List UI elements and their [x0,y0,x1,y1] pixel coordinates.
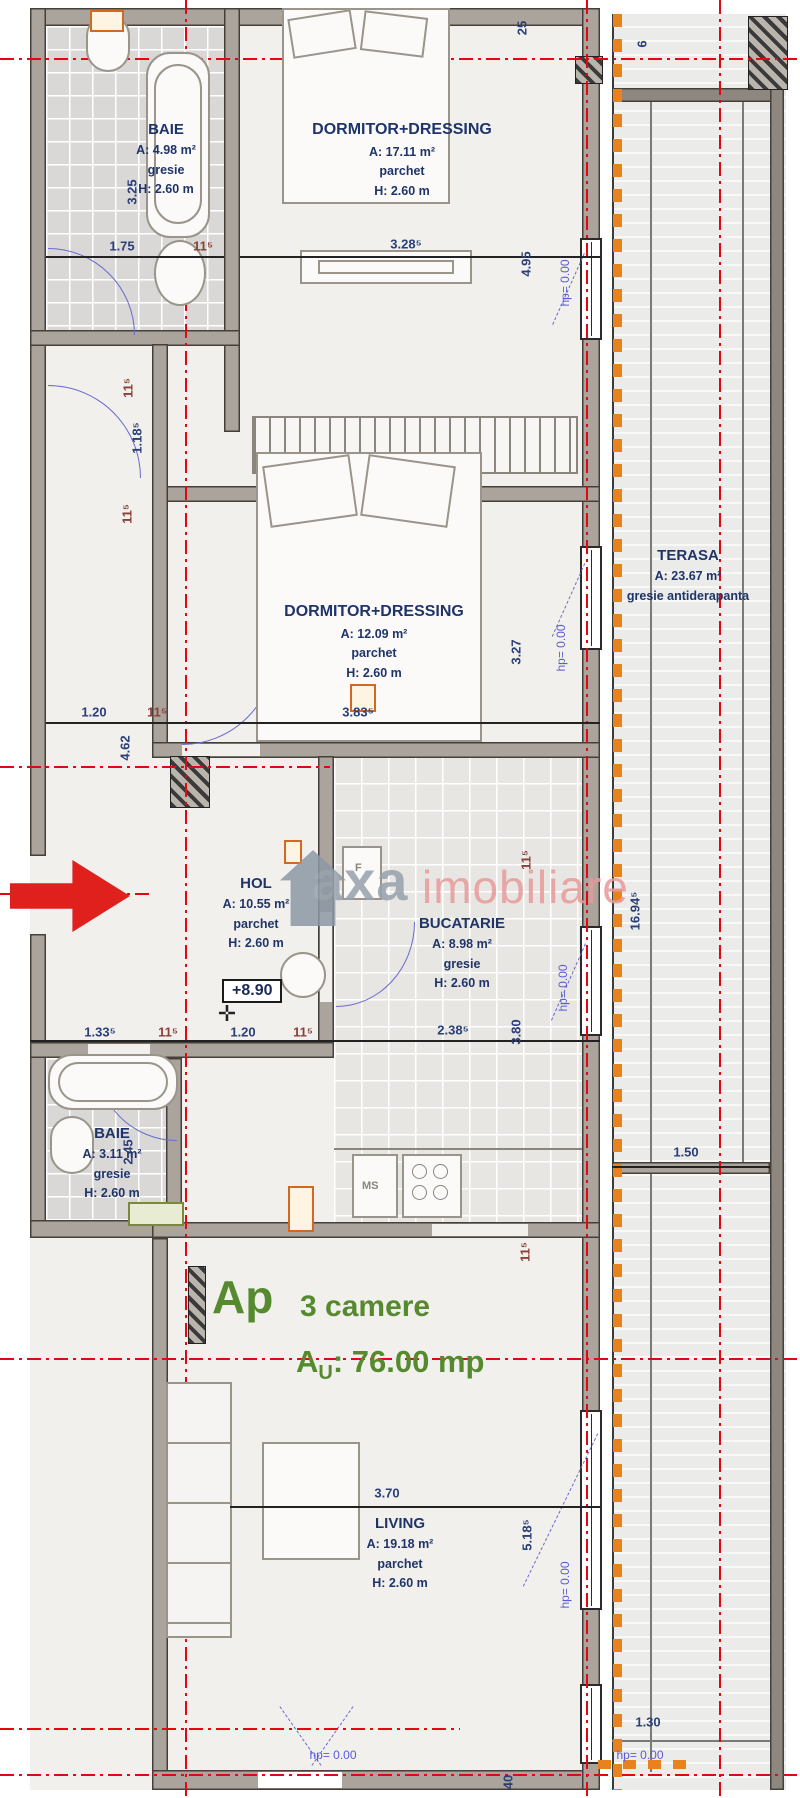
wall [152,344,168,758]
dimension-label: 4.95 [519,251,534,276]
room-label-dormitor-top: DORMITOR+DRESSING A: 17.11 m² parchet H:… [312,118,492,201]
terasa-wall [612,1162,770,1174]
dimension-label: 1.30 [635,1715,660,1730]
dimension-label: 1.50 [673,1145,698,1160]
passage-opening [432,1224,528,1236]
door-opening [320,912,332,1002]
parapet-height-label: hp= 0.00 [309,1748,356,1762]
dimension-label: 3.27 [509,639,524,664]
coffee-table [262,1442,360,1560]
red-axis-line [586,0,588,1798]
dimension-line [240,256,600,258]
dimension-line [612,1166,770,1168]
room-label-terasa: TERASA A: 23.67 m² gresie antiderapanta [627,544,749,606]
electrical-box [288,1186,314,1232]
kitchen-sink [280,952,326,998]
window [580,926,602,1036]
parapet-height-label: hp= 0.00 [554,624,568,671]
room-label-living: LIVING A: 19.18 m² parchet H: 2.60 m [367,1512,434,1593]
dimension-label: 11⁵ [519,850,534,870]
balcony-door [580,1684,602,1764]
dimension-label: 1.18⁵ [130,422,145,453]
red-axis-line [0,766,330,768]
pillow [262,454,358,528]
room-label-hol: HOL A: 10.55 m² parchet H: 2.60 m [223,872,290,953]
terasa-wall [770,88,784,1790]
dimension-label: 11⁵ [293,1025,313,1040]
dimension-label: 1.20 [81,705,106,720]
dimension-label: 3.80 [509,1019,524,1044]
dimension-label: 11⁵ [147,705,167,720]
dimension-label: 11⁵ [120,504,135,524]
dimension-label: 3.70 [374,1486,399,1501]
room-label-bucatarie: BUCATARIE A: 8.98 m² gresie H: 2.60 m [419,912,505,993]
survey-point-icon: ✛ [218,1001,236,1027]
bathroom-window [128,1202,184,1226]
door-opening [182,744,260,756]
dimension-label: 2.38⁵ [437,1023,468,1038]
dimension-label: 3.25 [125,179,140,204]
dresser-inner [318,260,454,274]
dimension-line [230,1506,600,1508]
bathtub-inner [58,1062,168,1102]
dimension-label: 25 [515,21,530,35]
wall [224,8,240,432]
level-marker: +8.90 [222,979,282,1003]
dimension-label: 40 [501,1775,516,1789]
terasa-structure-line [612,1740,770,1742]
counter-edge [334,1148,582,1150]
dimension-line [46,722,600,724]
dimension-label: 1.20 [230,1025,255,1040]
terasa-structure-line [742,88,744,1162]
wall [318,756,334,1058]
red-axis-line [0,1728,460,1730]
insulation-line [613,14,622,1790]
electrical-box [284,840,302,864]
terasa-structure-line [650,88,652,1772]
terasa-wall [612,88,784,102]
dimension-label: 11⁵ [193,239,213,254]
wall [152,1770,600,1790]
parapet-height-label: hp= 0.00 [616,1748,663,1762]
hatched-pier [188,1266,206,1344]
dimension-label: 4.62 [118,735,133,760]
hatched-pier [170,756,210,808]
parapet-height-label: hp= 0.00 [558,1561,572,1608]
room-label-baie-top: BAIE A: 4.98 m² gresie H: 2.60 m [136,118,196,199]
rooms-count-label: 3 camere [300,1290,430,1324]
dimension-label: 16.94⁵ [628,892,643,931]
fridge [342,846,382,900]
dimension-label: 2.45 [121,1139,136,1164]
parapet-height-label: hp= 0.00 [556,964,570,1011]
hatched-pier [575,56,603,84]
dimension-label: 11⁵ [121,378,136,398]
wall [152,1222,600,1238]
cabinet-label: MS [362,1180,379,1192]
apartment-type-label: Ap [212,1270,273,1324]
pillow [360,10,428,58]
room-label-dormitor-mid: DORMITOR+DRESSING A: 12.09 m² parchet H:… [284,600,464,683]
sofa [166,1382,232,1638]
usable-area-label: AU: 76.00 mp [296,1344,484,1385]
parapet-height-label: hp= 0.00 [558,259,572,306]
dimension-label: 5.18⁵ [520,1519,535,1550]
dimension-label: 3.83⁵ [342,705,373,720]
electrical-box [90,10,124,32]
dimension-label: 1.75 [109,239,134,254]
dimension-label: 11⁵ [518,1242,533,1262]
red-axis-line [719,0,721,1798]
dimension-label: 11⁵ [158,1025,178,1040]
dimension-line [46,256,224,258]
wall [30,934,46,1234]
window [580,1410,602,1610]
window [580,546,602,650]
dimension-label: 6 [635,40,650,47]
red-axis-line [0,1774,800,1776]
dimension-label: 1.33⁵ [84,1025,115,1040]
dimension-label: 3.28⁵ [390,237,421,252]
wall [30,8,46,856]
pillow [360,454,456,528]
stove-burners [406,1158,470,1206]
hatched-pier [748,16,788,90]
fridge-label: F [355,862,362,874]
floor-plan: F MS axa imobiliare BAIE A: 4.98 m² gres… [0,0,800,1798]
